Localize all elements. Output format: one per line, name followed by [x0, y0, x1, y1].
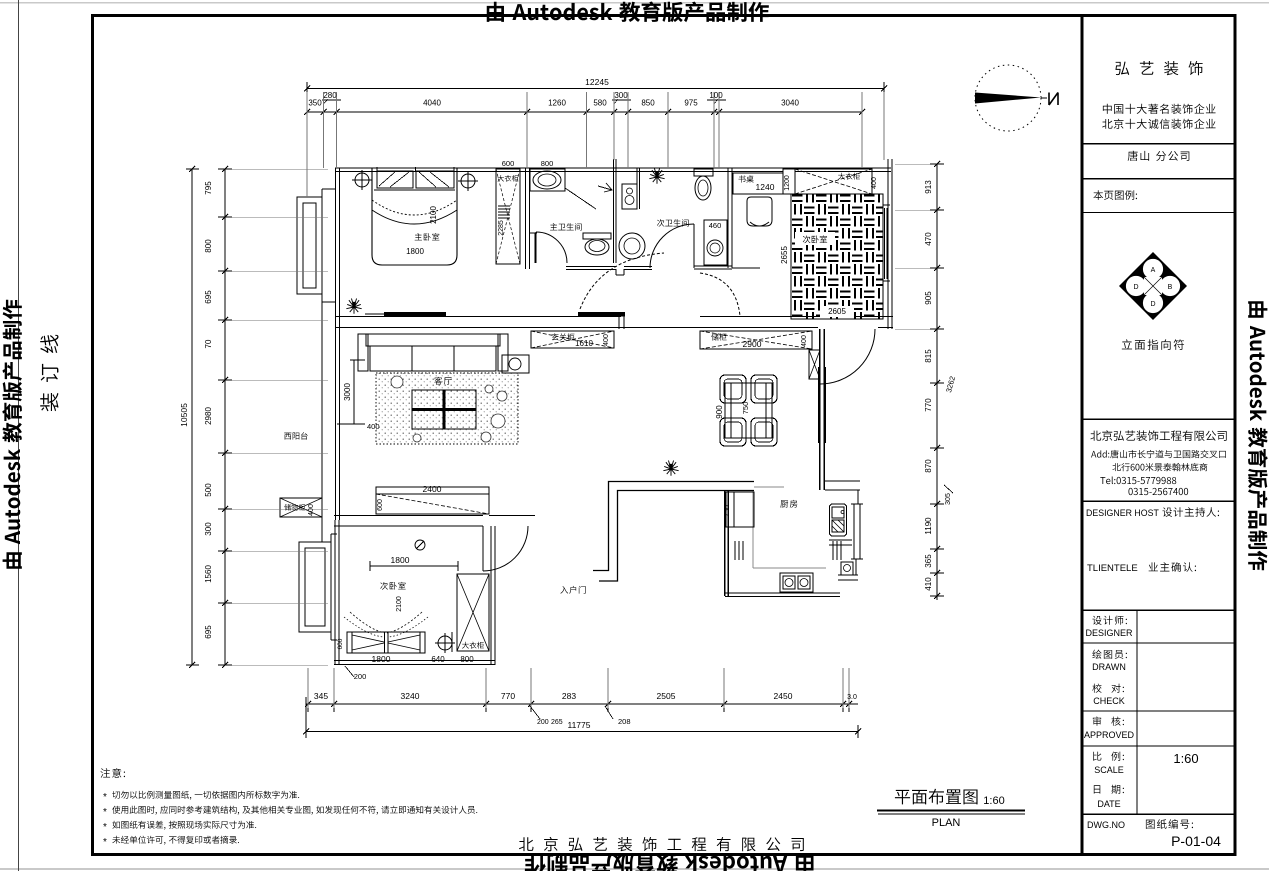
- svg-text:905: 905: [924, 291, 933, 305]
- svg-text:695: 695: [204, 625, 213, 639]
- svg-text:800: 800: [460, 655, 474, 664]
- svg-text:770: 770: [501, 691, 515, 701]
- svg-text:208: 208: [618, 717, 631, 726]
- svg-text:10505: 10505: [179, 403, 189, 427]
- svg-text:2400: 2400: [423, 484, 442, 494]
- svg-text:1:60: 1:60: [983, 795, 1004, 807]
- svg-text:1200: 1200: [784, 175, 791, 191]
- svg-text:3240: 3240: [401, 691, 420, 701]
- svg-text:2100: 2100: [396, 596, 403, 612]
- svg-text:1800: 1800: [406, 247, 424, 256]
- svg-text:283: 283: [562, 691, 576, 701]
- svg-text:280: 280: [323, 91, 337, 100]
- svg-text:500: 500: [204, 483, 213, 497]
- svg-text:470: 470: [924, 232, 933, 246]
- svg-text:2100: 2100: [429, 206, 438, 224]
- svg-text:815: 815: [924, 349, 933, 363]
- svg-text:2655: 2655: [780, 246, 789, 264]
- svg-text:750: 750: [724, 505, 731, 517]
- svg-text:3000: 3000: [343, 383, 352, 401]
- svg-text:1240: 1240: [756, 182, 775, 192]
- svg-text:200: 200: [537, 719, 549, 726]
- svg-text:3262: 3262: [944, 375, 957, 393]
- svg-text:2605: 2605: [828, 307, 846, 316]
- svg-text:770: 770: [924, 398, 933, 412]
- svg-text:2900: 2900: [743, 339, 762, 349]
- svg-text:460: 460: [709, 221, 722, 230]
- svg-text:305: 305: [945, 493, 952, 505]
- svg-text:2980: 2980: [204, 407, 213, 425]
- svg-text:400: 400: [367, 422, 380, 431]
- svg-text:3040: 3040: [781, 99, 799, 108]
- svg-text:A: A: [1151, 267, 1156, 274]
- svg-text:400: 400: [871, 177, 878, 189]
- svg-text:695: 695: [204, 290, 213, 304]
- svg-text:D: D: [1133, 284, 1138, 291]
- svg-text:900: 900: [715, 405, 724, 419]
- svg-text:913: 913: [924, 180, 933, 194]
- svg-text:870: 870: [924, 459, 933, 473]
- svg-text:975: 975: [684, 99, 698, 108]
- svg-text:TLIENTELE: TLIENTELE: [1087, 563, 1138, 574]
- svg-text:410: 410: [924, 577, 933, 591]
- svg-text:300: 300: [204, 522, 213, 536]
- svg-text:DWG.NO: DWG.NO: [1087, 820, 1125, 830]
- svg-text:DESIGNER: DESIGNER: [1085, 628, 1133, 638]
- svg-text:100: 100: [709, 91, 723, 100]
- svg-text:*: *: [103, 807, 107, 818]
- svg-text:2285: 2285: [498, 220, 505, 236]
- svg-text:APPROVED: APPROVED: [1084, 730, 1135, 740]
- svg-text:2450: 2450: [774, 691, 793, 701]
- svg-text:P-01-04: P-01-04: [1171, 833, 1221, 849]
- svg-text:600: 600: [377, 499, 384, 511]
- svg-text:*: *: [103, 792, 107, 803]
- svg-text:800: 800: [541, 159, 554, 168]
- svg-text:800: 800: [204, 239, 213, 253]
- svg-text:580: 580: [593, 99, 607, 108]
- svg-text:SCALE: SCALE: [1094, 765, 1124, 775]
- svg-text:4040: 4040: [423, 99, 441, 108]
- svg-text:1:60: 1:60: [1173, 751, 1198, 766]
- svg-text:600: 600: [337, 638, 344, 649]
- svg-text:*: *: [103, 837, 107, 848]
- svg-text:2505: 2505: [657, 691, 676, 701]
- svg-text:DATE: DATE: [1097, 799, 1120, 809]
- svg-text:600: 600: [502, 159, 515, 168]
- svg-text:850: 850: [641, 99, 655, 108]
- svg-text:1560: 1560: [204, 565, 213, 583]
- svg-text:200: 200: [354, 672, 367, 681]
- svg-text:3.0: 3.0: [847, 694, 857, 701]
- svg-text:B: B: [1168, 284, 1173, 291]
- svg-text:1800: 1800: [391, 555, 410, 565]
- svg-text:DESIGNER HOST: DESIGNER HOST: [1086, 508, 1159, 518]
- svg-text:D: D: [1150, 301, 1155, 308]
- svg-text:795: 795: [204, 181, 213, 195]
- svg-text:12245: 12245: [585, 77, 609, 87]
- svg-text:350: 350: [308, 99, 322, 108]
- svg-text:CHECK: CHECK: [1093, 696, 1125, 706]
- svg-text:1260: 1260: [548, 99, 566, 108]
- svg-text:400: 400: [801, 335, 808, 347]
- svg-text:1800: 1800: [372, 654, 391, 664]
- svg-text:640: 640: [431, 655, 445, 664]
- svg-text:300: 300: [614, 91, 628, 100]
- svg-text:11775: 11775: [567, 720, 590, 730]
- svg-text:70: 70: [204, 339, 213, 348]
- svg-text:1190: 1190: [924, 517, 933, 535]
- svg-text:*: *: [103, 822, 107, 833]
- svg-text:DRAWN: DRAWN: [1092, 662, 1126, 672]
- svg-text:345: 345: [314, 691, 328, 701]
- svg-text:400: 400: [308, 504, 315, 516]
- svg-text:PLAN: PLAN: [932, 817, 961, 829]
- svg-text:365: 365: [924, 554, 933, 568]
- svg-text:400: 400: [603, 334, 610, 346]
- svg-text:265: 265: [551, 719, 563, 726]
- svg-text:750: 750: [741, 402, 750, 415]
- svg-text:1610: 1610: [575, 339, 593, 348]
